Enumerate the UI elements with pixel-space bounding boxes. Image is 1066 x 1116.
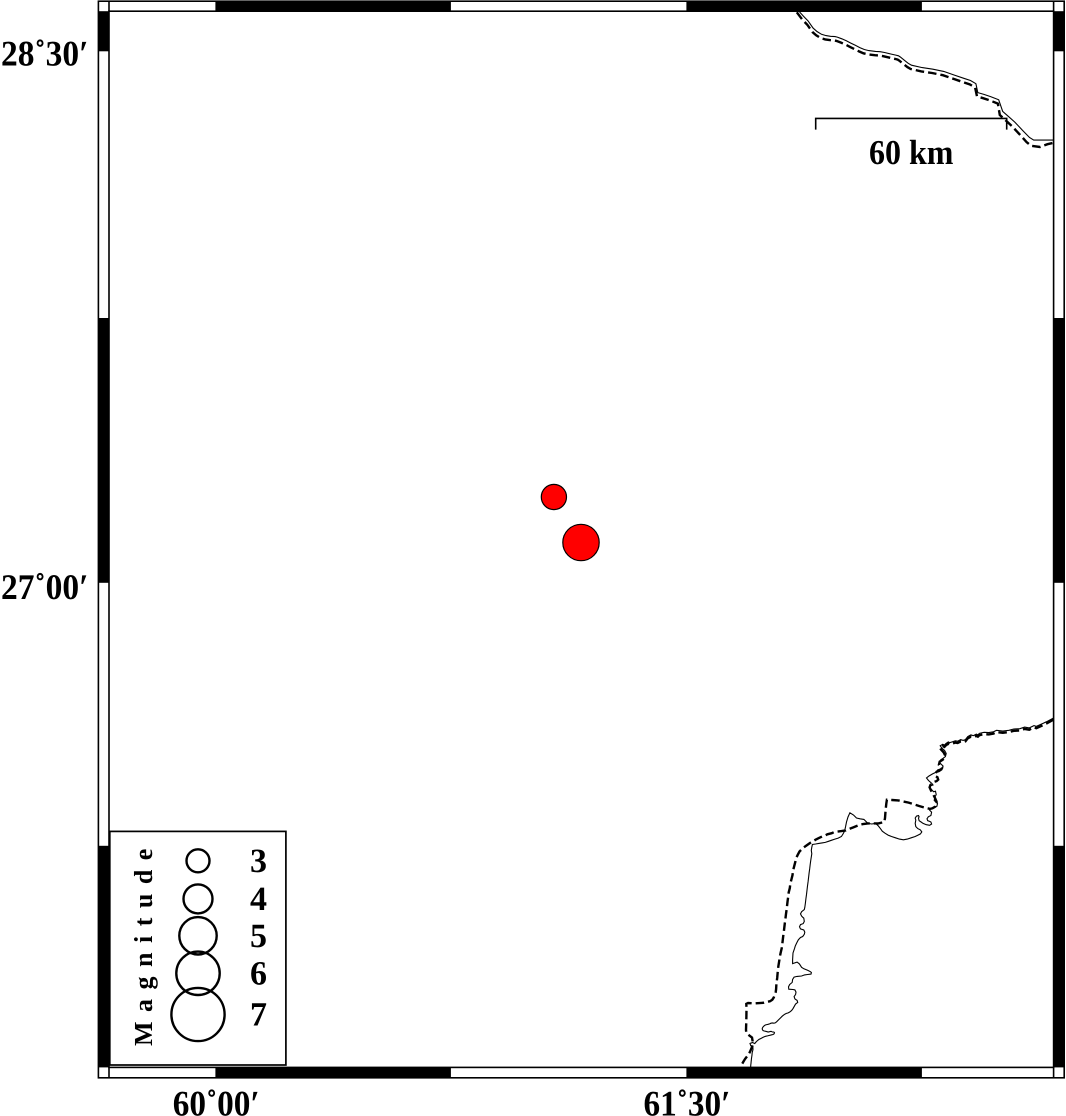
svg-text:Magnitude: Magnitude bbox=[129, 839, 158, 1046]
svg-text:61˚30′: 61˚30′ bbox=[644, 1083, 731, 1116]
svg-text:27˚00′: 27˚00′ bbox=[1, 567, 89, 607]
svg-text:3: 3 bbox=[250, 843, 267, 880]
svg-text:4: 4 bbox=[250, 881, 267, 918]
svg-text:28˚30′: 28˚30′ bbox=[1, 34, 89, 74]
svg-text:5: 5 bbox=[250, 918, 267, 955]
svg-text:6: 6 bbox=[250, 955, 267, 992]
svg-text:60 km: 60 km bbox=[869, 133, 954, 172]
svg-text:7: 7 bbox=[250, 997, 267, 1034]
svg-text:60˚00′: 60˚00′ bbox=[173, 1083, 260, 1116]
